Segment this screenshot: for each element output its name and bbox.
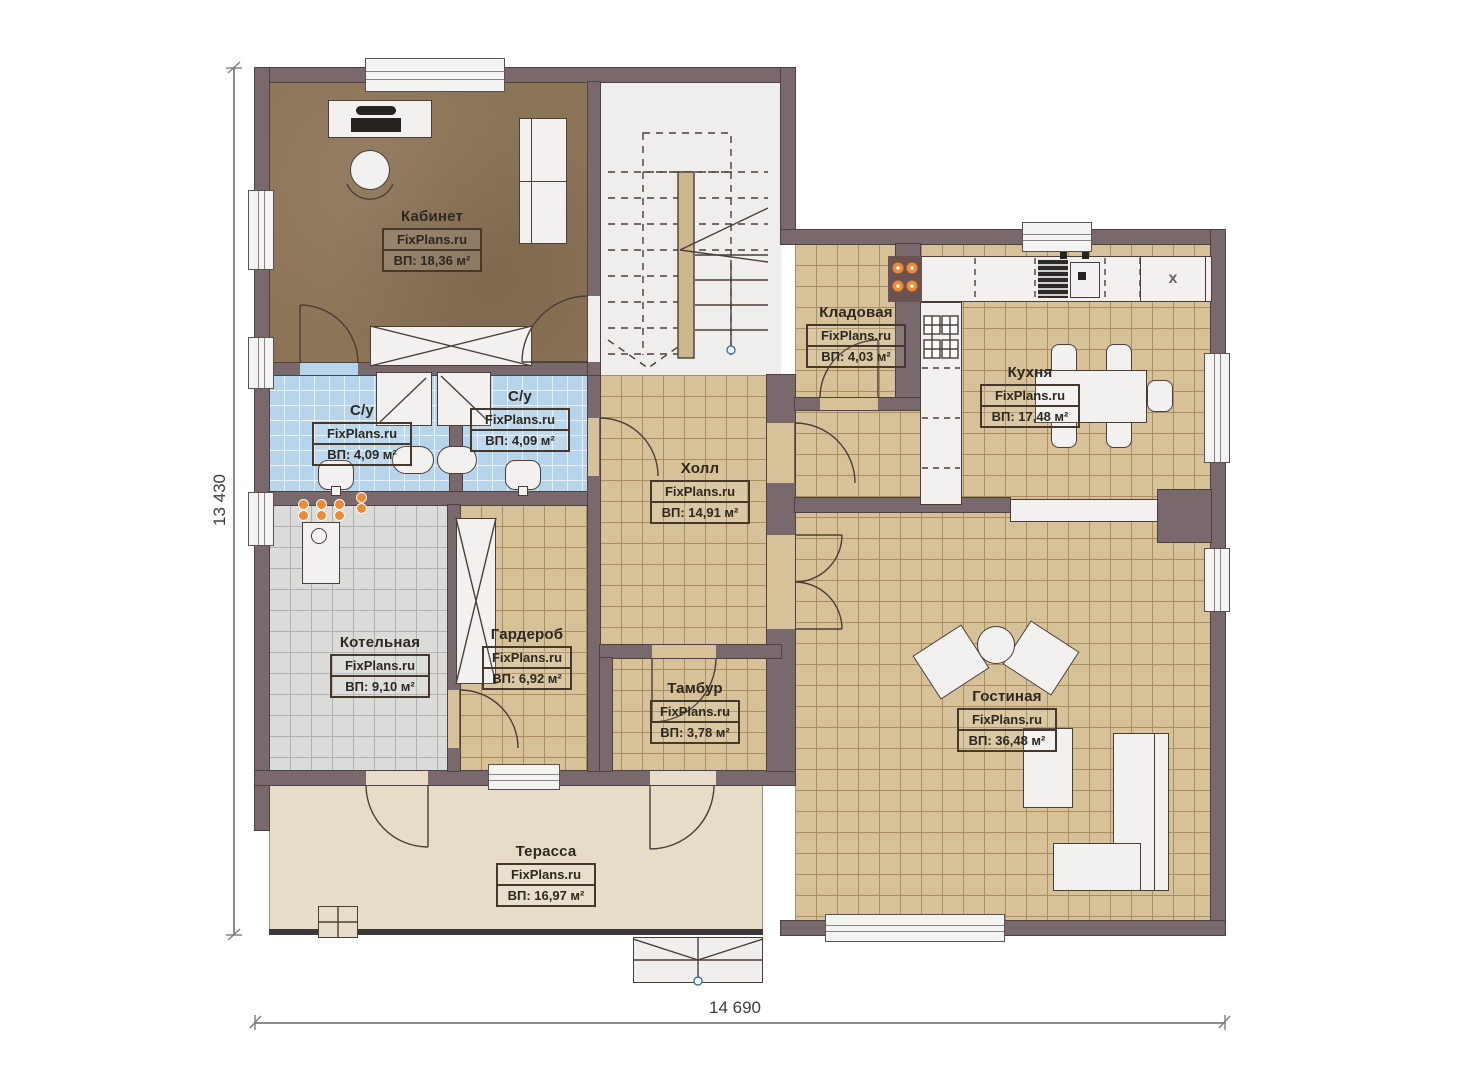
brand-watermark: FixPlans.ru <box>498 865 594 884</box>
window-living-right <box>1204 548 1230 612</box>
pipe-dot <box>299 511 308 520</box>
kitchen-unit-x: x <box>1140 256 1206 302</box>
room-area: ВП: 6,92 м² <box>484 667 570 688</box>
wall-stairs-right <box>781 68 795 244</box>
terrace-bench <box>318 906 358 938</box>
wall-kitchen-living <box>795 498 1010 512</box>
room-name: Холл <box>650 460 750 477</box>
opening-bath2-door <box>588 418 600 476</box>
room-label-terrace: Терасса FixPlans.ru ВП: 16,97 м² <box>496 843 596 907</box>
pipe-dot <box>317 511 326 520</box>
opening-hall-living <box>767 535 795 629</box>
office-sofa <box>519 118 567 244</box>
pipe-dot <box>317 500 326 509</box>
room-name: С/у <box>312 402 412 419</box>
pipe-dot <box>299 500 308 509</box>
boiler-dial <box>311 528 327 544</box>
stove <box>888 256 922 302</box>
floor-plan: x 13 430 14 690 <box>0 0 1473 1080</box>
entrance-steps <box>633 937 763 983</box>
opening-office-door <box>588 296 600 362</box>
window-bath-left <box>248 337 274 389</box>
room-name: С/у <box>470 388 570 405</box>
window-kitchen-right <box>1204 353 1230 463</box>
sideboard <box>1010 499 1158 522</box>
dim-line-left <box>233 68 235 935</box>
opening-boiler-terrace <box>366 771 428 785</box>
kitchen-counter-left <box>920 302 962 505</box>
room-area: ВП: 14,91 м² <box>652 501 748 522</box>
pipe-dot <box>335 500 344 509</box>
opening-vestibule-top <box>652 645 716 658</box>
window-wardrobe-bottom <box>488 764 560 790</box>
brand-watermark: FixPlans.ru <box>808 326 904 345</box>
room-name: Гардероб <box>482 626 572 643</box>
opening-office-bath <box>300 363 358 375</box>
room-label-boiler: Котельная FixPlans.ru ВП: 9,10 м² <box>330 634 430 698</box>
office-chair <box>350 150 390 190</box>
room-area: ВП: 18,36 м² <box>384 249 480 270</box>
toilet-1-tank <box>331 486 341 496</box>
wall-top-right <box>781 230 1225 244</box>
side-table <box>977 626 1015 664</box>
dim-width-label: 14 690 <box>690 998 780 1018</box>
room-area: ВП: 16,97 м² <box>498 884 594 905</box>
window-boiler-left <box>248 492 274 546</box>
wall-top-left <box>255 68 795 82</box>
kitchen-sink <box>1070 262 1100 298</box>
window-office-left <box>248 190 274 270</box>
opening-entrance <box>650 771 716 785</box>
room-label-hall: Холл FixPlans.ru ВП: 14,91 м² <box>650 460 750 524</box>
brand-watermark: FixPlans.ru <box>959 710 1055 729</box>
room-name: Кухня <box>980 364 1080 381</box>
room-name: Тамбур <box>650 680 740 697</box>
room-area: ВП: 4,09 м² <box>314 443 410 464</box>
wall-vestibule-left <box>600 658 612 771</box>
opening-hall-kitchen <box>767 423 795 483</box>
brand-watermark: FixPlans.ru <box>314 424 410 443</box>
room-label-bath-2: С/у FixPlans.ru ВП: 4,09 м² <box>470 388 570 452</box>
dining-chair <box>1147 380 1173 412</box>
brand-watermark: FixPlans.ru <box>332 656 428 675</box>
room-label-wardrobe: Гардероб FixPlans.ru ВП: 6,92 м² <box>482 626 572 690</box>
brand-watermark: FixPlans.ru <box>652 482 748 501</box>
floor-staircase <box>600 82 781 375</box>
room-label-office: Кабинет FixPlans.ru ВП: 18,36 м² <box>382 208 482 272</box>
room-label-kitchen: Кухня FixPlans.ru ВП: 17,48 м² <box>980 364 1080 428</box>
dim-line-bottom <box>255 1022 1225 1024</box>
opening-wardrobe-door <box>448 690 460 748</box>
wall-pillar <box>1158 490 1211 542</box>
kitchen-unit-label: x <box>1169 270 1178 288</box>
pipe-dot <box>357 504 366 513</box>
room-area: ВП: 17,48 м² <box>982 405 1078 426</box>
pipe-dot <box>335 511 344 520</box>
room-name: Кладовая <box>806 304 906 321</box>
brand-watermark: FixPlans.ru <box>652 702 738 721</box>
room-name: Котельная <box>330 634 430 651</box>
room-name: Кабинет <box>382 208 482 225</box>
sofa-horizontal <box>1053 843 1141 891</box>
room-area: ВП: 3,78 м² <box>652 721 738 742</box>
room-name: Терасса <box>496 843 596 860</box>
brand-watermark: FixPlans.ru <box>982 386 1078 405</box>
room-name: Гостиная <box>957 688 1057 705</box>
window-living-bottom <box>825 914 1005 942</box>
room-area: ВП: 4,09 м² <box>472 429 568 450</box>
room-label-pantry: Кладовая FixPlans.ru ВП: 4,03 м² <box>806 304 906 368</box>
room-label-living: Гостиная FixPlans.ru ВП: 36,48 м² <box>957 688 1057 752</box>
room-area: ВП: 9,10 м² <box>332 675 428 696</box>
room-label-bath-1: С/у FixPlans.ru ВП: 4,09 м² <box>312 402 412 466</box>
room-label-vestibule: Тамбур FixPlans.ru ВП: 3,78 м² <box>650 680 740 744</box>
opening-pantry-door <box>820 398 878 410</box>
toilet-2-tank <box>518 486 528 496</box>
printer-body-icon <box>351 118 401 132</box>
dish-rack <box>1038 260 1068 298</box>
brand-watermark: FixPlans.ru <box>384 230 480 249</box>
window-office-top <box>365 58 505 92</box>
wall-left <box>255 68 269 830</box>
brand-watermark: FixPlans.ru <box>472 410 568 429</box>
printer-icon <box>356 106 396 115</box>
office-wardrobe <box>370 326 532 366</box>
window-kitchen-top <box>1022 222 1092 252</box>
room-area: ВП: 36,48 м² <box>959 729 1055 750</box>
brand-watermark: FixPlans.ru <box>484 648 570 667</box>
room-area: ВП: 4,03 м² <box>808 345 904 366</box>
dim-height-label: 13 430 <box>210 465 230 535</box>
pipe-dot <box>357 493 366 502</box>
